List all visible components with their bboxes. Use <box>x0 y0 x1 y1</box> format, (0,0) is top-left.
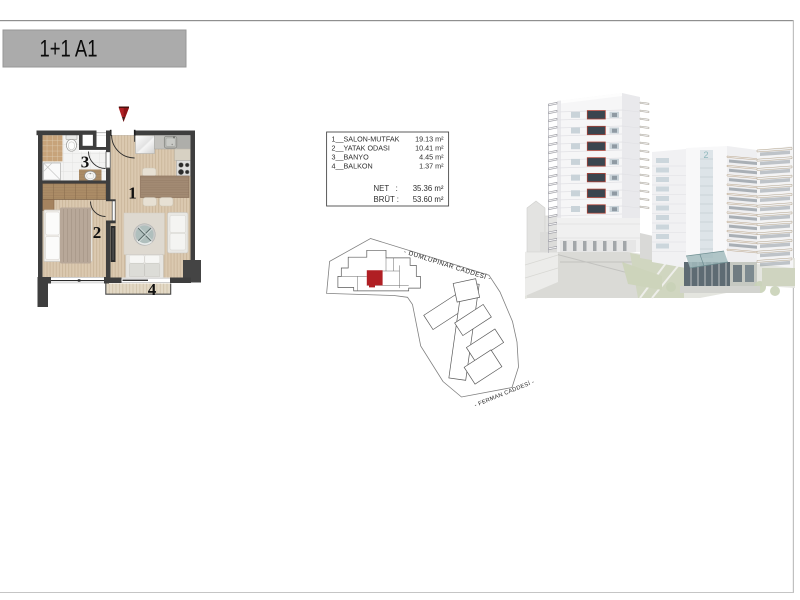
svg-text:3: 3 <box>81 153 90 172</box>
svg-text:NET :: NET : <box>374 184 398 193</box>
svg-text:10.41 m²: 10.41 m² <box>415 143 444 152</box>
svg-text:4__BALKON: 4__BALKON <box>332 161 373 170</box>
svg-text:1: 1 <box>128 184 137 203</box>
svg-text:53.60 m²: 53.60 m² <box>413 195 444 204</box>
svg-text:35.36 m²: 35.36 m² <box>413 184 444 193</box>
svg-text:BRÜT :: BRÜT : <box>374 195 399 204</box>
svg-text:2: 2 <box>703 150 708 160</box>
svg-text:1.37 m²: 1.37 m² <box>419 161 444 170</box>
svg-text:2__YATAK ODASI: 2__YATAK ODASI <box>332 143 390 152</box>
svg-text:4.45 m²: 4.45 m² <box>419 152 444 161</box>
svg-text:1+1 A1: 1+1 A1 <box>40 36 98 63</box>
svg-text:4: 4 <box>148 280 157 299</box>
svg-text:3__BANYO: 3__BANYO <box>332 152 370 161</box>
svg-text:19.13 m²: 19.13 m² <box>415 134 444 143</box>
svg-text:2: 2 <box>93 223 102 242</box>
svg-text:1__SALON-MUTFAK: 1__SALON-MUTFAK <box>332 134 400 143</box>
